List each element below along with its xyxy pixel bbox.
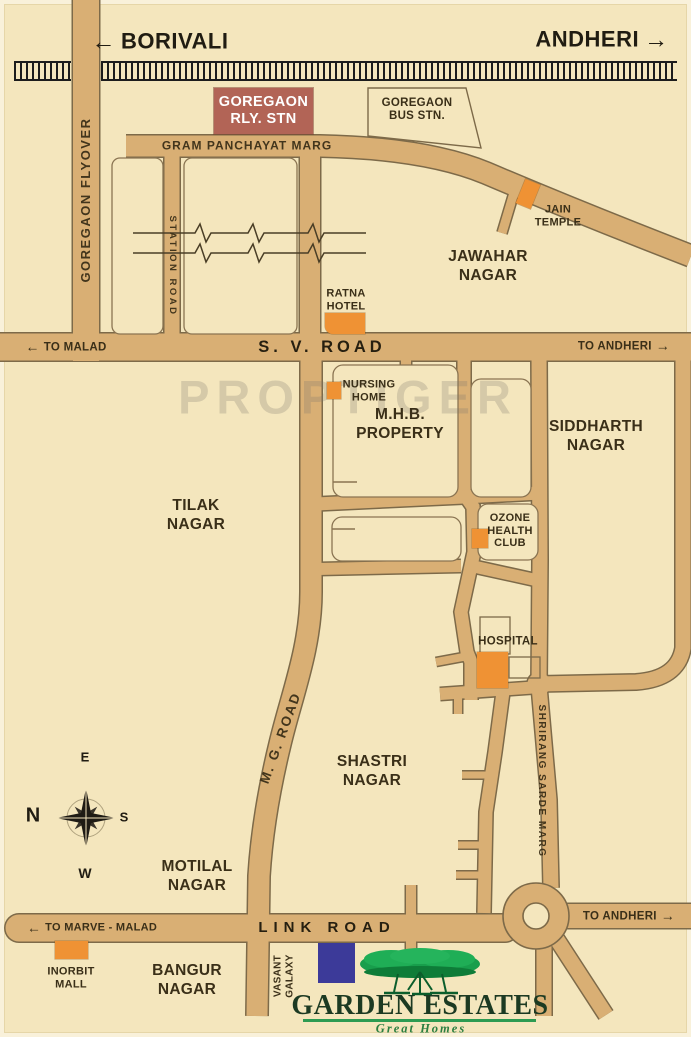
right-arrow-icon: → [644,25,669,54]
ozone-health-club-label: OZONE HEALTH CLUB [487,512,533,550]
nursing-home-box [327,382,341,399]
compass-south: S [120,810,129,825]
compass-east: E [81,750,90,765]
hospital-box [477,652,508,688]
link-road-label: LINK ROAD [258,919,395,937]
area-mhb-property: M.H.B. PROPERTY [356,406,444,444]
direction-to-andheri-link: TO ANDHERI → [583,907,675,924]
logo-name: GARDEN ESTATES [291,990,548,1022]
direction-andheri: ANDHERI → [535,25,668,54]
station-road-label: STATION ROAD [166,216,178,317]
bus-station-label: GOREGAON BUS STN. [382,97,453,123]
railway-track-left [14,61,71,81]
right-arrow-icon: → [656,337,670,354]
goregaon-flyover-label: GOREGAON FLYOVER [78,117,94,282]
direction-to-andheri-sv: TO ANDHERI → [578,337,670,354]
hospital-label: HOSPITAL [478,635,538,648]
ratna-hotel-label: RATNA HOTEL [326,287,365,312]
logo-tagline: Great Homes [376,1022,466,1037]
vasant-galaxy-box [318,943,355,983]
sv-road-label: S. V. ROAD [258,337,385,357]
borivali-label: BORIVALI [121,29,228,56]
compass-north: N [26,805,40,828]
direction-borivali: ← BORIVALI [92,27,229,56]
ozone-club-box [472,529,488,548]
inorbit-mall-box [55,941,88,959]
roundabout [503,883,569,949]
area-bangur-nagar: BANGUR NAGAR [152,962,222,1000]
left-arrow-icon: ← [92,27,117,56]
left-arrow-icon: ← [27,919,41,936]
right-arrow-icon: → [661,907,675,924]
nursing-home-label: NURSING HOME [343,378,396,403]
area-jawahar-nagar: JAWAHAR NAGAR [448,248,528,286]
ratna-hotel-box [325,313,365,334]
area-motilal-nagar: MOTILAL NAGAR [162,858,233,896]
andheri-label: ANDHERI [535,27,639,54]
map-roads-layer [0,0,691,1037]
inorbit-mall-label: INORBIT MALL [47,965,94,990]
compass-west: W [78,865,91,881]
railway-track-right [101,61,677,81]
gram-panchayat-marg-label: GRAM PANCHAYAT MARG [162,139,332,154]
goregaon-railway-station-box: GOREGAON RLY. STN [214,88,313,134]
compass-rose [46,776,126,860]
shrirang-sarde-marg-label: SHRIRANG SARDE MARG [535,705,547,858]
direction-to-malad: ← TO MALAD [25,338,106,355]
area-tilak-nagar: TILAK NAGAR [167,497,225,535]
direction-to-marve-malad: ← TO MARVE - MALAD [27,919,157,936]
area-siddharth-nagar: SIDDHARTH NAGAR [549,418,643,456]
jain-temple-label: JAIN TEMPLE [535,203,581,228]
left-arrow-icon: ← [25,338,39,355]
area-shastri-nagar: SHASTRI NAGAR [337,753,407,791]
location-map: PROPTIGER GOREGAON RLY. STN ← BORIVALI A… [0,0,691,1037]
logo-tree-icon [358,948,483,996]
